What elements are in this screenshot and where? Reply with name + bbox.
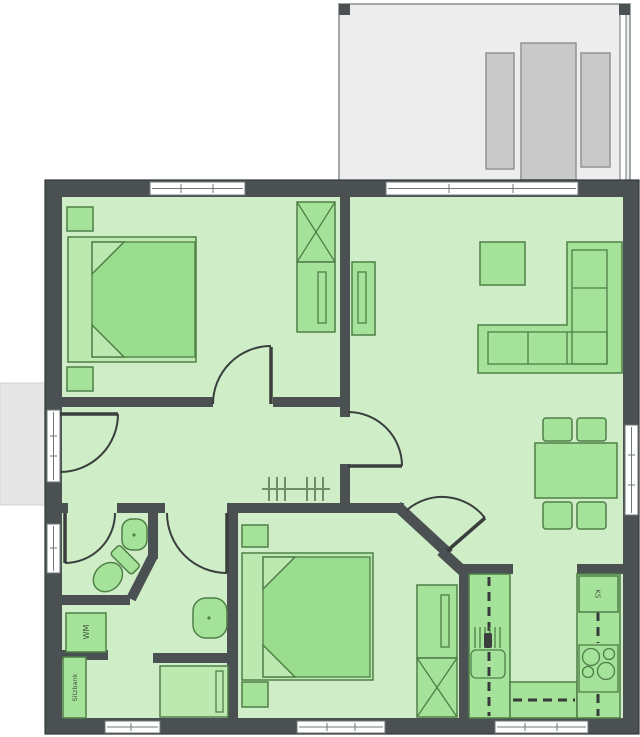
- entrance-walkway: [0, 383, 46, 505]
- wall-wc-right: [148, 513, 158, 559]
- sideboard: [352, 262, 375, 335]
- nightstand: [67, 367, 93, 391]
- chair: [577, 418, 606, 441]
- washbasin-drain: [207, 616, 210, 619]
- terrace-post-left: [339, 4, 350, 15]
- lounger: [521, 43, 576, 180]
- wall-wc-bath-top: [117, 503, 165, 513]
- nightstand: [242, 525, 268, 547]
- wall-hall-bottom-corner: [62, 503, 68, 513]
- washbasin-drain: [132, 533, 135, 536]
- window-wc-left: [47, 524, 60, 573]
- window-kitchen-bottom: [495, 721, 588, 733]
- dresser: [297, 262, 335, 332]
- lounger: [581, 53, 610, 167]
- window-bedroom1-top: [150, 182, 245, 195]
- fridge-label: KS: [594, 589, 602, 599]
- floor-plan: WM Sitzbank KS: [0, 0, 640, 737]
- chair: [577, 502, 606, 529]
- washing-machine-label: WM: [82, 624, 91, 639]
- chair: [543, 418, 572, 441]
- window-bedroom2-bottom: [297, 721, 385, 733]
- mattress: [263, 557, 370, 677]
- wall-wc-bottom: [62, 595, 130, 605]
- wall-kitchen-top-left: [459, 564, 513, 574]
- bathtub: [160, 666, 228, 717]
- lounger: [486, 53, 514, 169]
- window-living-terrace: [386, 182, 578, 195]
- window-bath-bottom: [105, 721, 160, 733]
- wall-bedroom1-bottom-left: [62, 397, 213, 407]
- window-dining-right: [625, 425, 638, 515]
- terrace-post-right: [619, 4, 630, 15]
- floor-plan-page: WM Sitzbank KS: [0, 0, 640, 737]
- terrace: [339, 4, 630, 185]
- coffee-table: [480, 242, 525, 285]
- nightstand: [242, 682, 268, 707]
- wall-bedroom1-bottom-right: [273, 397, 350, 407]
- wall-kitchen-left: [459, 568, 469, 718]
- dining-table: [535, 443, 617, 498]
- terrace-right-rail: [620, 12, 626, 180]
- chair: [543, 502, 572, 529]
- nightstand: [67, 207, 93, 231]
- sink-faucet: [484, 633, 492, 648]
- wall-kitchen-top-right: [577, 564, 623, 574]
- entrance-door-opening: [47, 410, 60, 482]
- wall-hall-bottom: [227, 503, 404, 513]
- wall-tub-top: [153, 653, 238, 663]
- bench-label: Sitzbank: [71, 673, 79, 701]
- cabinet: [417, 585, 457, 658]
- wall-bedroom1-living: [340, 197, 350, 417]
